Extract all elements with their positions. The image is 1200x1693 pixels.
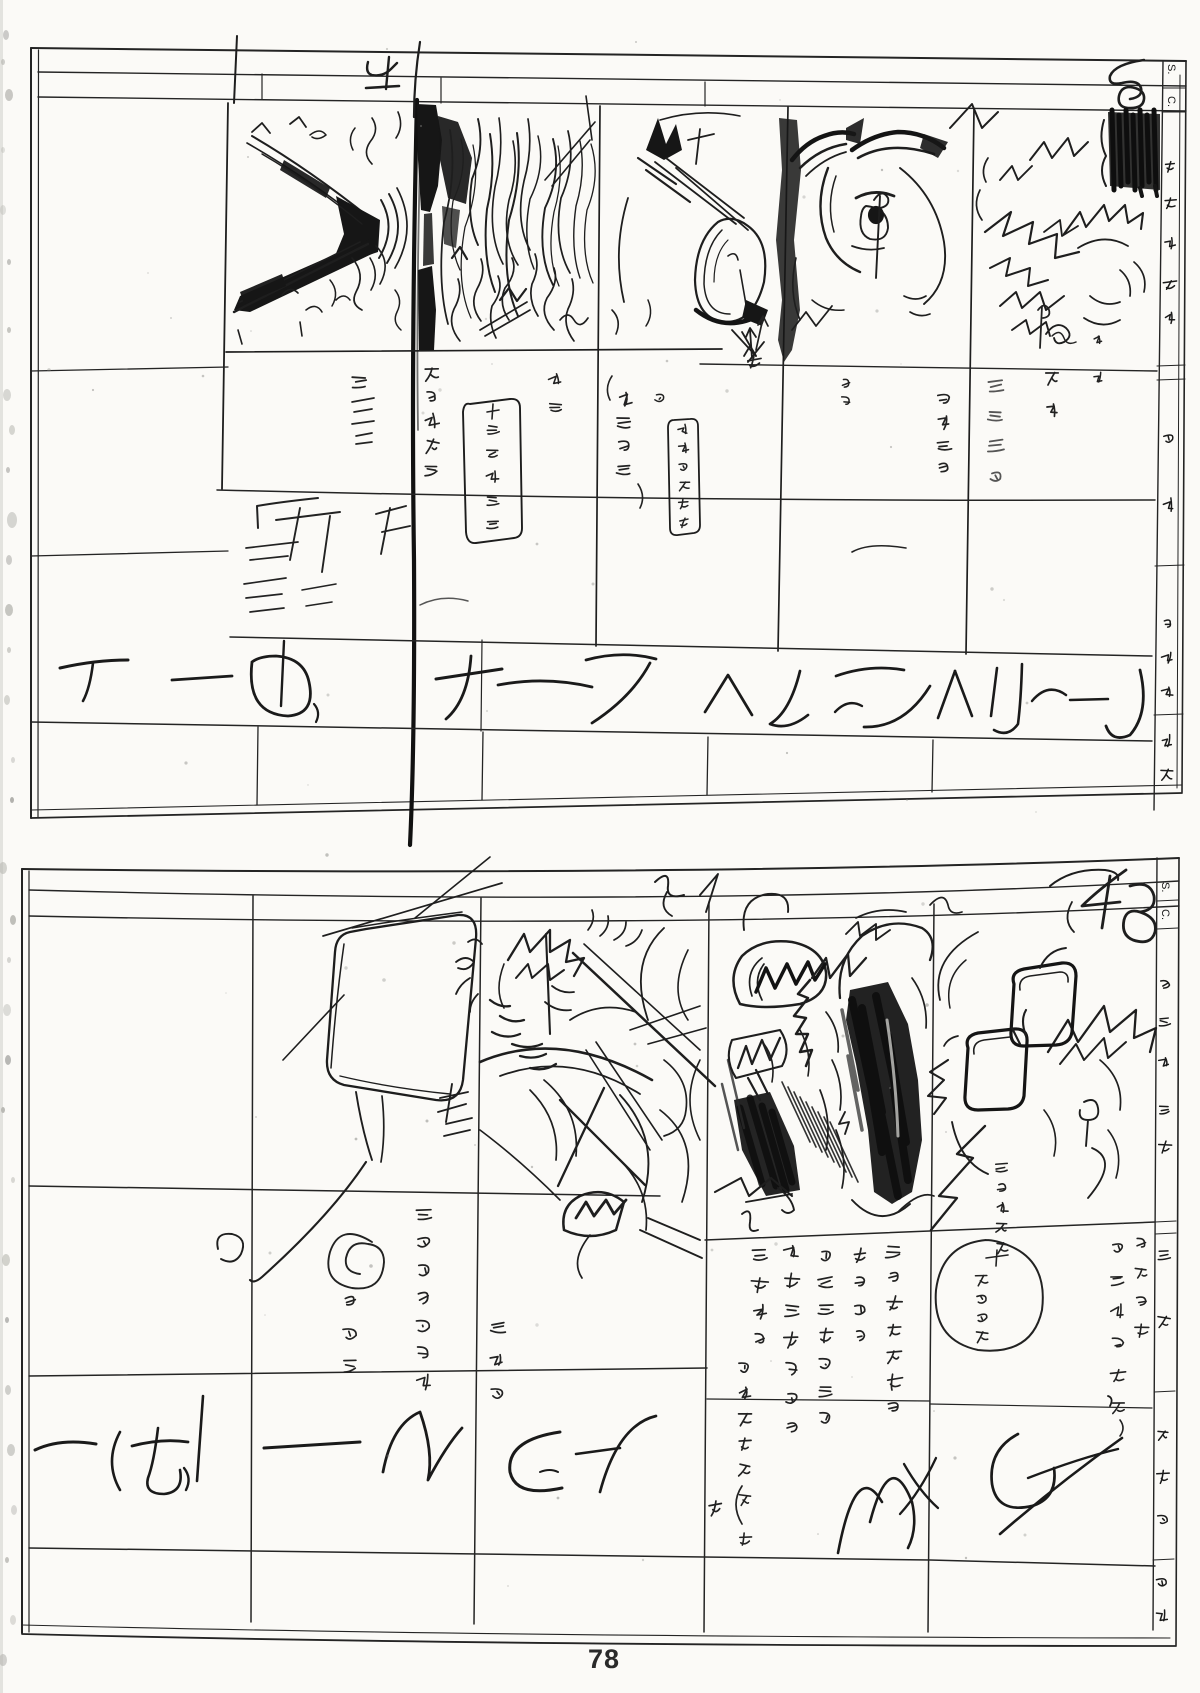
svg-text:78: 78 xyxy=(588,1644,620,1674)
svg-text:C.: C. xyxy=(1159,909,1171,920)
svg-text:S.: S. xyxy=(1165,64,1177,74)
svg-text:C.: C. xyxy=(1165,96,1177,107)
svg-text:S.: S. xyxy=(1159,882,1171,892)
